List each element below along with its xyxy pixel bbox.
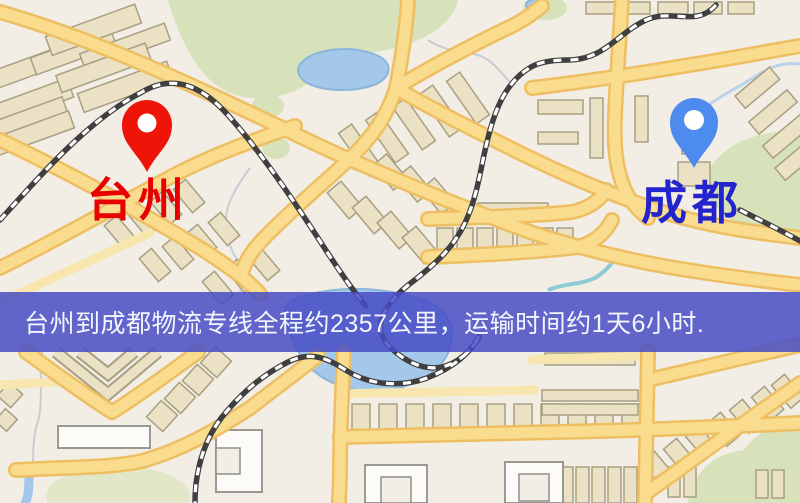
destination-city-label: 成都 bbox=[641, 180, 743, 226]
route-info-text: 台州到成都物流专线全程约2357公里，运输时间约1天6小时. bbox=[24, 304, 704, 340]
map-screenshot: 台州 成都 台州到成都物流专线全程约2357公里，运输时间约1天6小时. bbox=[0, 0, 800, 503]
map-canvas bbox=[0, 0, 800, 503]
origin-city-label: 台州 bbox=[87, 177, 189, 223]
route-info-banner: 台州到成都物流专线全程约2357公里，运输时间约1天6小时. bbox=[0, 292, 800, 352]
